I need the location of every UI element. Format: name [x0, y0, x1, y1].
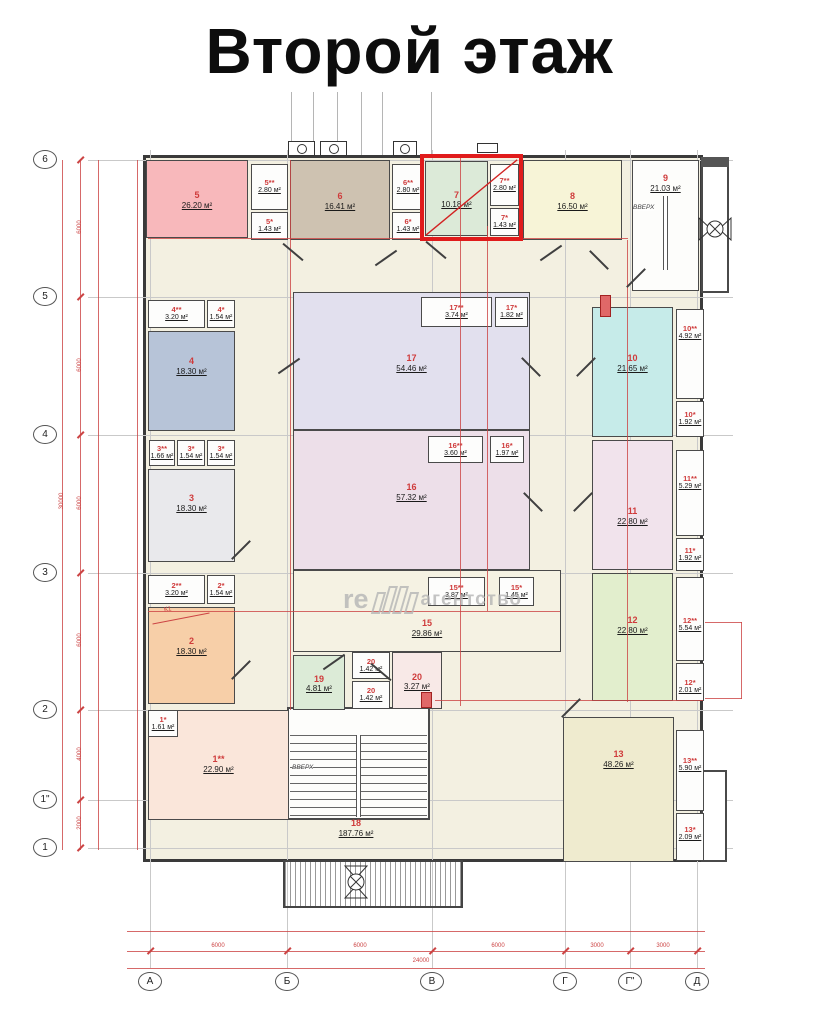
dim-label: 6000	[208, 943, 228, 949]
axis-bubble-Г: Г	[553, 972, 577, 991]
room-area: 22.80 м²	[593, 517, 672, 527]
room-number: 16**	[429, 441, 482, 450]
room-10ss: 10**4.92 м²	[676, 309, 704, 399]
room-area: 5.90 м²	[677, 765, 703, 773]
room-area: 3.20 м²	[149, 590, 204, 598]
dimension-line	[741, 622, 742, 699]
dim-tick	[77, 844, 84, 851]
room-3ss: 3**1.66 м²	[149, 440, 175, 466]
room-16s: 16*1.97 м²	[490, 436, 524, 463]
room-number: 10**	[677, 324, 703, 333]
room-number: 11**	[677, 474, 703, 483]
dimension-line	[705, 622, 742, 623]
room-number: 6**	[393, 178, 423, 187]
axis-bubble-А: А	[138, 972, 162, 991]
dimension-line	[435, 700, 703, 701]
vent-box	[477, 143, 498, 153]
dimension-line	[705, 698, 742, 699]
room-area: 54.46 м²	[294, 364, 529, 374]
room-number: 4	[149, 356, 234, 367]
room-area: 2.01 м²	[677, 687, 703, 695]
room-5s: 5*1.43 м²	[251, 212, 288, 240]
room-area: 1.43 м²	[252, 226, 287, 234]
room-area: 187.76 м²	[300, 829, 412, 839]
dim-label: 6000	[77, 355, 83, 375]
room-area: 3.60 м²	[429, 450, 482, 458]
room-3sa: 3*1.54 м²	[177, 440, 205, 466]
dim-label: 2000	[77, 813, 83, 833]
dimension-line	[127, 951, 705, 952]
dim-label: 6000	[350, 943, 370, 949]
room-area: 16.41 м²	[291, 202, 389, 212]
riser-shaft	[600, 295, 611, 317]
axis-bubble-Б: Б	[275, 972, 299, 991]
room-2s: 2*1.54 м²	[207, 575, 235, 604]
watermark-text-agency: агентство	[421, 589, 523, 611]
room-number: 5	[147, 190, 247, 201]
sink-fixture-icon	[288, 141, 315, 156]
room-11ss: 11**5.29 м²	[676, 450, 704, 536]
room-4: 418.30 м²	[148, 331, 235, 431]
room-number: 11	[593, 506, 672, 517]
room-12ss: 12**5.54 м²	[676, 577, 704, 661]
dimension-line	[148, 238, 628, 239]
axis-bubble-5: 5	[33, 287, 57, 306]
sink-fixture-icon	[393, 141, 417, 156]
extension-line	[382, 92, 383, 155]
room-area: 1.54 м²	[208, 453, 234, 461]
room-17ss: 17**3.74 м²	[421, 297, 492, 327]
room-number: 4**	[149, 305, 204, 314]
stairs-up-label: ВВЕРХ	[292, 764, 313, 771]
room-4ss: 4**3.20 м²	[148, 300, 205, 328]
room-number: 3**	[150, 444, 174, 453]
room-area: 2.09 м²	[677, 834, 703, 842]
room-number: 1**	[149, 754, 288, 765]
entrance-canopy	[283, 860, 463, 908]
dimension-line	[127, 931, 705, 932]
room-area: 1.92 м²	[677, 555, 703, 563]
watermark-logo-icon	[374, 586, 416, 614]
stairs-up-label: ВВЕРХ	[633, 204, 654, 211]
dim-label: 6000	[488, 943, 508, 949]
dim-label: 6000	[77, 630, 83, 650]
room-2ss: 2**3.20 м²	[148, 575, 205, 604]
room-area: 3.20 м²	[149, 314, 204, 322]
room-area: 1.54 м²	[208, 314, 234, 322]
room-4s: 4*1.54 м²	[207, 300, 235, 328]
room-area: 18.30 м²	[149, 367, 234, 377]
room-13s: 13*2.09 м²	[676, 813, 704, 861]
room-area: 29.86 м²	[294, 629, 560, 639]
room-number: 16*	[491, 441, 523, 450]
room-12: 1222.80 м²	[592, 573, 673, 701]
room-area: 1.42 м²	[353, 695, 389, 703]
room-area: 5.54 м²	[677, 625, 703, 633]
room-10: 1021.65 м²	[592, 307, 673, 437]
riser-shaft	[421, 692, 432, 708]
room-number: 17**	[422, 303, 491, 312]
room-number: 19	[294, 674, 344, 685]
room-number: 3	[149, 493, 234, 504]
room-12s: 12*2.01 м²	[676, 663, 704, 701]
grid-line	[287, 150, 288, 968]
room-area: 1.97 м²	[491, 450, 523, 458]
room-area: 3.74 м²	[422, 312, 491, 320]
room-1s: 1*1.61 м²	[148, 710, 178, 737]
floor-plan-page: Второй этаж ВВЕРХ ВВЕРХ К1	[0, 0, 819, 1029]
axis-bubble-Г": Г"	[618, 972, 642, 991]
room-area: 48.26 м²	[564, 760, 673, 770]
watermark-text-re: re	[343, 584, 369, 615]
room-number: 11*	[677, 546, 703, 555]
room-6: 616.41 м²	[290, 160, 390, 240]
room-number: 10*	[677, 410, 703, 419]
room-3: 318.30 м²	[148, 469, 235, 562]
room-area: 18.30 м²	[149, 647, 234, 657]
room-area: 3.27 м²	[393, 682, 441, 692]
room-number: 20	[393, 672, 441, 683]
room-number: 18	[300, 818, 412, 829]
room-number: 3*	[208, 444, 234, 453]
room-19: 194.81 м²	[293, 655, 345, 710]
room-area: 1.92 м²	[677, 419, 703, 427]
room-area: 1.54 м²	[178, 453, 204, 461]
k1-annotation: К1	[163, 605, 172, 613]
room-number: 6*	[393, 217, 423, 226]
room-11: 1122.80 м²	[592, 440, 673, 570]
dimension-line	[290, 160, 291, 710]
room-13ss: 13**5.90 м²	[676, 730, 704, 811]
room-8: 816.50 м²	[523, 160, 622, 240]
room-number: 13**	[677, 756, 703, 765]
room-area: 26.20 м²	[147, 201, 247, 211]
room-number: 6	[291, 191, 389, 202]
room-area: 5.29 м²	[677, 483, 703, 491]
room-17s: 17*1.82 м²	[495, 297, 528, 327]
room-area: 1.43 м²	[393, 226, 423, 234]
room-area: 57.32 м²	[294, 493, 529, 503]
room-number: 12*	[677, 678, 703, 687]
room-area: 21.65 м²	[593, 364, 672, 374]
sink-fixture-icon	[320, 141, 347, 156]
dim-label: 3000	[653, 943, 673, 949]
dim-label: 6000	[77, 493, 83, 513]
room-area: 22.80 м²	[593, 626, 672, 636]
room-number: 1*	[149, 715, 177, 724]
dim-label: 4000	[77, 744, 83, 764]
page-title: Второй этаж	[0, 14, 819, 88]
room-13: 1348.26 м²	[563, 717, 674, 862]
axis-bubble-В: В	[420, 972, 444, 991]
room-area: 1.61 м²	[149, 724, 177, 732]
room-area: 22.90 м²	[149, 765, 288, 775]
extension-line	[361, 92, 362, 155]
watermark: re агентство	[343, 584, 522, 615]
room-number: 17	[294, 353, 529, 364]
wall-cap	[701, 157, 729, 167]
highlight-box	[420, 154, 523, 241]
room-number: 2**	[149, 581, 204, 590]
room-number: 8	[524, 191, 621, 202]
room-number: 17*	[496, 303, 527, 312]
stair-stringer	[356, 735, 361, 817]
axis-bubble-3: 3	[33, 563, 57, 582]
axis-bubble-2: 2	[33, 700, 57, 719]
room-area: 1.82 м²	[496, 312, 527, 320]
room-area: 1.66 м²	[150, 453, 174, 461]
room-10s: 10*1.92 м²	[676, 401, 704, 437]
dimension-line	[98, 160, 99, 850]
dimension-line	[487, 226, 488, 611]
room-area: 18.30 м²	[149, 504, 234, 514]
section-marker-icon	[342, 865, 370, 899]
axis-bubble-6: 6	[33, 150, 57, 169]
room-area: 21.03 м²	[633, 184, 698, 194]
room-3sb: 3*1.54 м²	[207, 440, 235, 466]
room-area: 16.50 м²	[524, 202, 621, 212]
room-number: 10	[593, 353, 672, 364]
room-number: 4*	[208, 305, 234, 314]
room-number: 12**	[677, 616, 703, 625]
axis-bubble-1": 1"	[33, 790, 57, 809]
dim-total-label: 24000	[406, 958, 436, 964]
dim-label: 6000	[77, 217, 83, 237]
axis-bubble-1: 1	[33, 838, 57, 857]
room-number: 13	[564, 749, 673, 760]
room-number: 2*	[208, 581, 234, 590]
room-20b: 201.42 м²	[352, 681, 390, 709]
stair-stringer	[663, 196, 668, 270]
extension-line	[431, 92, 432, 155]
room-number: 16	[294, 482, 529, 493]
dim-total-label: 30000	[59, 489, 65, 513]
axis-bubble-4: 4	[33, 425, 57, 444]
room-5: 526.20 м²	[146, 160, 248, 238]
room-number: 20	[353, 686, 389, 695]
room-number: 15	[294, 618, 560, 629]
room-16ss: 16**3.60 м²	[428, 436, 483, 463]
room-number: 9	[633, 173, 698, 184]
dimension-line	[137, 160, 138, 850]
room-area: 2.80 м²	[252, 187, 287, 195]
room-area: 4.81 м²	[294, 684, 344, 694]
room-number: 5**	[252, 178, 287, 187]
dimension-line	[127, 968, 705, 969]
room-area: 2.80 м²	[393, 187, 423, 195]
room-number: 5*	[252, 217, 287, 226]
room-number: 2	[149, 636, 234, 647]
room-number: 13*	[677, 825, 703, 834]
axis-bubble-Д: Д	[685, 972, 709, 991]
dimension-line	[627, 240, 628, 702]
room-11s: 11*1.92 м²	[676, 538, 704, 571]
room-number: 12	[593, 615, 672, 626]
section-marker-icon	[698, 215, 732, 243]
room-area: 1.54 м²	[208, 590, 234, 598]
room-5ss: 5**2.80 м²	[251, 164, 288, 210]
balcony-strip-bottom-right	[701, 770, 727, 862]
room-area: 4.92 м²	[677, 333, 703, 341]
dim-label: 3000	[587, 943, 607, 949]
room-number: 3*	[178, 444, 204, 453]
